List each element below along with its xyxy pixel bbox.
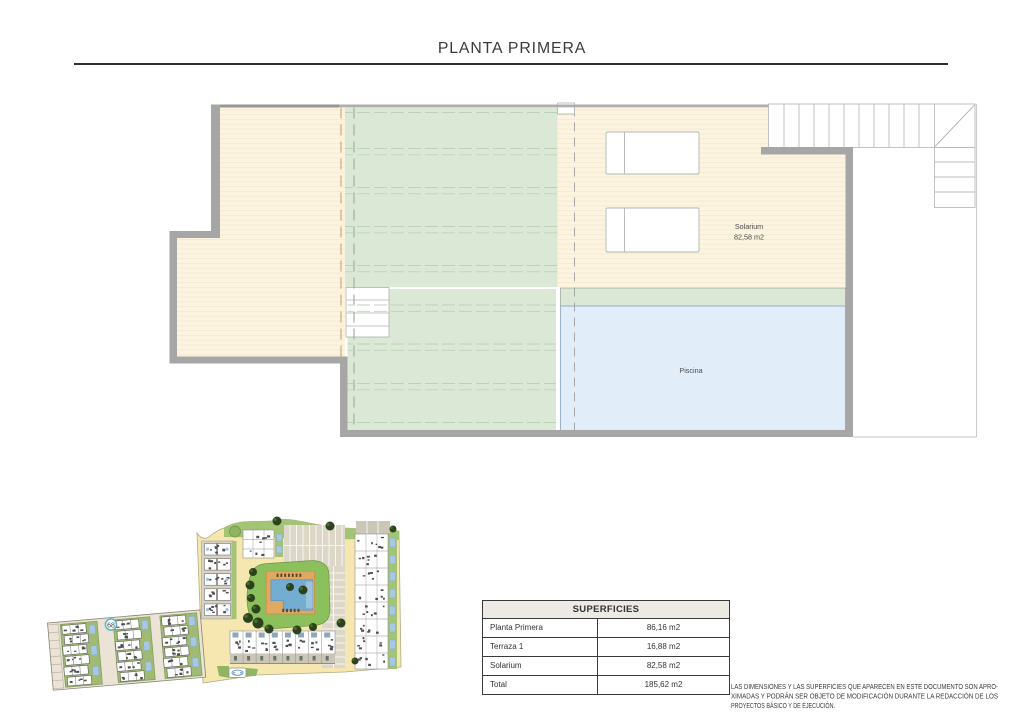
svg-text:LAS DIMENSIONES Y LAS SUPERFIC: LAS DIMENSIONES Y LAS SUPERFICIES QUE AP… xyxy=(731,684,999,691)
svg-text:XIMADAS Y PODRÁN SER OBJETO DE: XIMADAS Y PODRÁN SER OBJETO DE MODIFICAC… xyxy=(731,692,998,701)
svg-text:PROYECTOS BÁSICO Y DE EJECUCIÓ: PROYECTOS BÁSICO Y DE EJECUCIÓN. xyxy=(731,701,835,710)
svg-text:Piscina: Piscina xyxy=(679,366,702,375)
svg-text:82,58 m2: 82,58 m2 xyxy=(734,233,764,242)
svg-text:68: 68 xyxy=(107,622,115,629)
svg-text:Solarium: Solarium xyxy=(735,222,763,231)
